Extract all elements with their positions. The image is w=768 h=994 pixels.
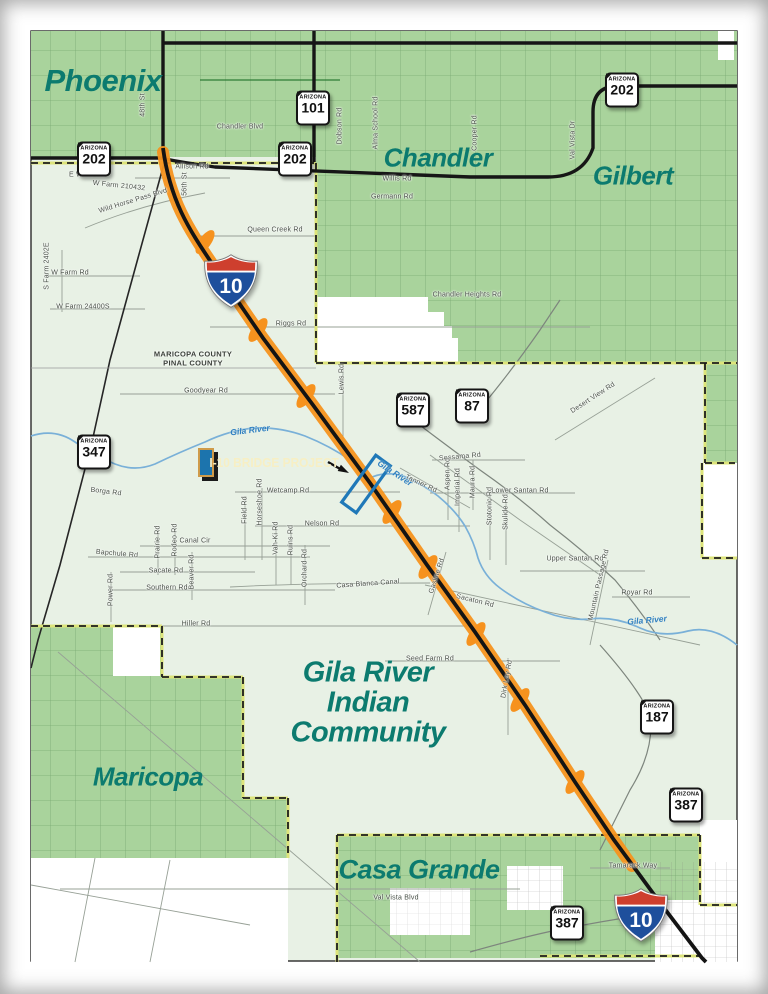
route-shield-az-87: ARIZONA87 xyxy=(455,389,489,424)
interstate-number: 10 xyxy=(219,275,242,298)
road-label: Rodeo Rd xyxy=(172,523,179,556)
city-label-chandler: Chandler xyxy=(384,143,493,174)
road-label: Germann Rd xyxy=(371,194,413,201)
shield-number: 347 xyxy=(82,444,105,459)
road-label: Sacaton Rd xyxy=(455,593,494,609)
map-sheet: I-10 BRIDGE PROJECT Chandler Blvd48th St… xyxy=(0,0,768,994)
road-label: Power Rd xyxy=(108,574,115,606)
road-label: Stotonic Rd xyxy=(487,487,494,525)
shield-number: 87 xyxy=(464,398,480,413)
road-label: Val Vista Blvd xyxy=(373,895,418,902)
road-label: Val Vista Dr xyxy=(570,121,577,160)
shield-corner-icon xyxy=(641,701,647,707)
road-label: Goodyear Rd xyxy=(184,388,228,395)
shield-corner-icon xyxy=(606,74,612,80)
road-label: Chandler Blvd xyxy=(217,124,264,131)
shield-corner-icon xyxy=(78,143,84,149)
interstate-shield-10: 10 xyxy=(202,252,260,310)
city-label-phoenix: Phoenix xyxy=(44,63,161,99)
road-label: Horseshoe Rd xyxy=(257,478,264,525)
road-label: Field Rd xyxy=(242,496,249,524)
road-label: Borga Rd xyxy=(90,487,122,498)
community-label-line: Community xyxy=(291,717,446,750)
route-shield-az-202: ARIZONA202 xyxy=(278,142,312,177)
route-shield-az-202: ARIZONA202 xyxy=(605,73,639,108)
shield-corner-icon xyxy=(78,436,84,442)
river-label: Gila River xyxy=(230,423,271,438)
road-label: Dobson Rd xyxy=(337,108,344,145)
shield-number: 202 xyxy=(283,151,306,166)
route-shield-az-101: ARIZONA101 xyxy=(296,91,330,126)
road-label: S Farm 2402E xyxy=(44,242,51,290)
road-label: Vah-Ki Rd xyxy=(273,521,280,554)
road-label: Tamarack Way xyxy=(609,863,657,870)
shield-number: 202 xyxy=(82,151,105,166)
shield-number: 101 xyxy=(301,100,324,115)
road-label: Nelson Rd xyxy=(305,521,339,528)
road-label: Desert View Rd xyxy=(570,381,617,415)
city-label-gilbert: Gilbert xyxy=(593,161,673,192)
shield-corner-icon xyxy=(297,92,303,98)
river-label: Gila River xyxy=(376,458,415,488)
road-label: Wild Horse Pass Blvd xyxy=(98,187,168,215)
route-shield-az-387: ARIZONA387 xyxy=(669,788,703,823)
city-label-casa-grande: Casa Grande xyxy=(338,855,499,886)
community-label-line: Indian xyxy=(327,687,409,720)
road-label: 56th St xyxy=(182,172,189,196)
road-label: Imperial Rd xyxy=(455,468,462,506)
road-label: Wetcamp Rd xyxy=(267,488,309,495)
road-label: Allison Rd xyxy=(175,164,209,171)
road-label: Skulide Rd xyxy=(503,494,510,530)
shield-number: 387 xyxy=(674,797,697,812)
interstate-number: 10 xyxy=(629,909,652,932)
road-label: Ruins Rd xyxy=(288,525,295,555)
road-label: Orchard Rd xyxy=(302,549,309,587)
shield-corner-icon xyxy=(670,789,676,795)
road-label: Maura Rd xyxy=(470,466,477,498)
road-label: W Farm 24400S xyxy=(56,304,110,311)
route-shield-az-202: ARIZONA202 xyxy=(77,142,111,177)
county-label-line: MARICOPA COUNTY xyxy=(154,350,232,359)
shield-corner-icon xyxy=(279,143,285,149)
route-shield-az-587: ARIZONA587 xyxy=(396,393,430,428)
interstate-shield-icon: 10 xyxy=(202,252,260,310)
shield-number: 587 xyxy=(401,402,424,417)
shield-number: 202 xyxy=(610,82,633,97)
map-labels: I-10 BRIDGE PROJECT Chandler Blvd48th St… xyxy=(0,0,768,994)
road-label: Lower Santan Rd xyxy=(491,488,548,495)
shield-corner-icon xyxy=(397,394,403,400)
road-label: Lewis Rd xyxy=(339,364,346,394)
river-label: Gila River xyxy=(627,613,667,626)
road-label: Chandler Heights Rd xyxy=(433,292,502,299)
road-label: W Farm 210432 xyxy=(92,180,145,192)
shield-corner-icon xyxy=(551,907,557,913)
road-label: Riggs Rd xyxy=(276,321,306,328)
shield-corner-icon xyxy=(456,390,462,396)
city-label-maricopa: Maricopa xyxy=(93,762,203,793)
route-shield-az-387: ARIZONA387 xyxy=(550,906,584,941)
road-label: Dirk Lay Rd xyxy=(500,659,514,698)
road-label: Royar Rd xyxy=(621,590,652,597)
bridge-project-callout: I-10 BRIDGE PROJECT xyxy=(198,448,214,477)
community-label-line: Gila River xyxy=(303,657,433,690)
road-label: Casa Blanca Canal xyxy=(336,578,400,589)
road-label: Prairie Rd xyxy=(155,525,162,558)
road-label: Upper Santan Rd xyxy=(546,556,603,563)
interstate-shield-10: 10 xyxy=(612,886,670,944)
road-label: Beaver Rd xyxy=(189,555,196,590)
road-label: Southern Rd xyxy=(146,585,188,592)
route-shield-az-347: ARIZONA347 xyxy=(77,435,111,470)
road-label: W Farm Rd xyxy=(51,270,89,277)
road-label: Queen Creek Rd xyxy=(247,227,302,234)
road-label: Hiller Rd xyxy=(182,621,211,628)
shield-number: 187 xyxy=(645,709,668,724)
interstate-shield-icon: 10 xyxy=(612,886,670,944)
road-label: Canal Cir xyxy=(180,538,211,545)
route-shield-az-187: ARIZONA187 xyxy=(640,700,674,735)
road-label: Willis Rd xyxy=(382,176,411,183)
county-label-line: PINAL COUNTY xyxy=(163,359,223,368)
road-label: Sacate Rd xyxy=(149,568,184,575)
bridge-project-callout-label: I-10 BRIDGE PROJECT xyxy=(209,456,338,470)
road-label: Aspen Rd xyxy=(445,458,452,490)
road-label: Alma School Rd xyxy=(373,97,380,150)
road-label: Bapchule Rd xyxy=(96,549,139,560)
road-label: Gasline Rd xyxy=(428,557,446,594)
shield-number: 387 xyxy=(555,915,578,930)
